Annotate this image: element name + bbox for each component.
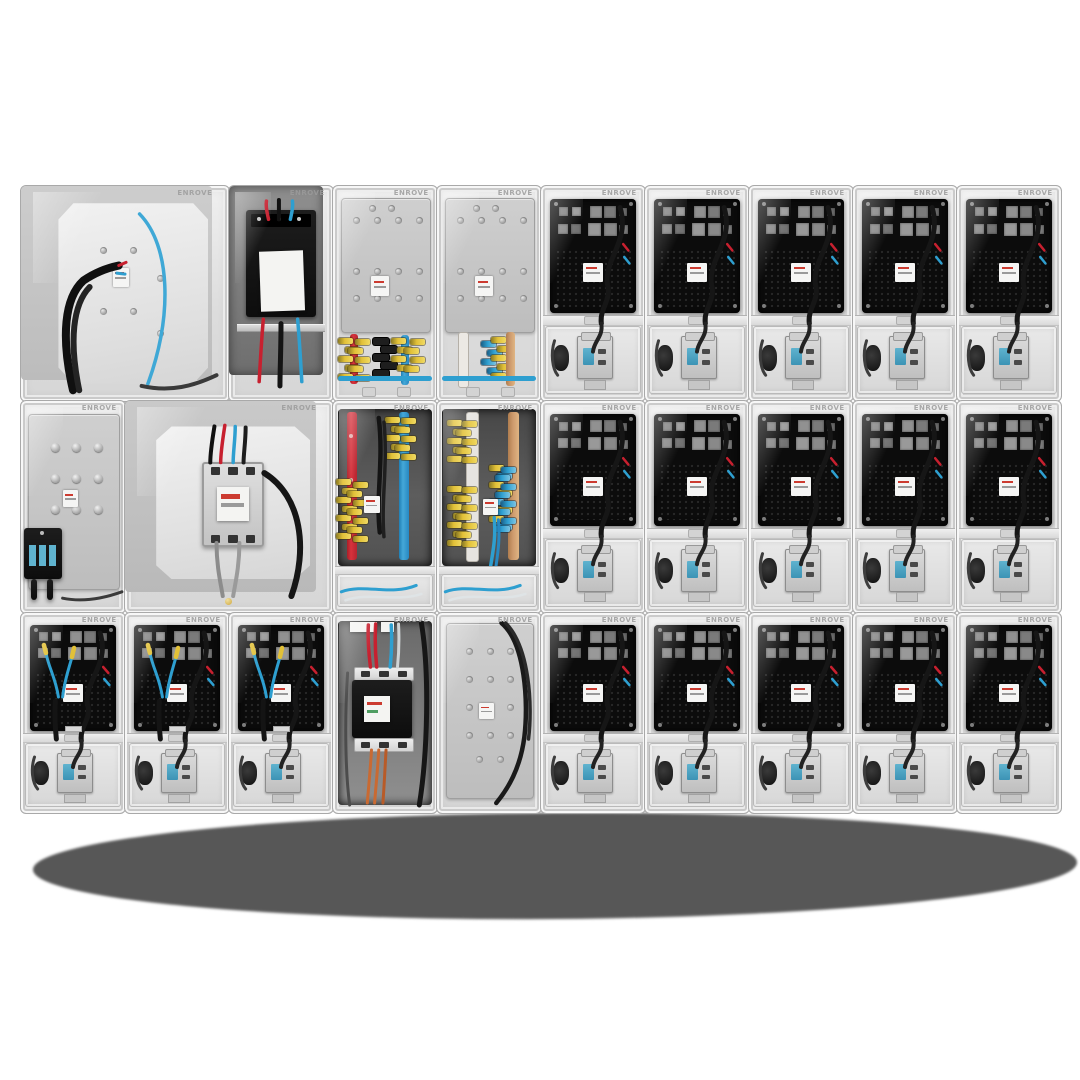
meter-window-cutout — [142, 648, 152, 658]
meter-window-cutout — [260, 632, 269, 641]
meter-window-cutout — [871, 207, 880, 216]
enclosure-blank-plate-C5: ENROVE — [436, 612, 542, 814]
meter-window-cutout — [1035, 225, 1044, 234]
meter-window-cutout — [590, 206, 602, 218]
busbar-lug — [385, 435, 400, 441]
block-foot — [272, 794, 295, 803]
label-mark-red — [586, 267, 597, 269]
strip-slot — [379, 742, 388, 749]
terminal-slot — [910, 562, 919, 567]
terminal-chip-blue — [63, 764, 73, 780]
meter-window-cutout — [766, 224, 776, 234]
meter-window-cutout — [604, 206, 616, 218]
meter-window-cutout — [987, 224, 997, 234]
terminal-block-top — [997, 545, 1027, 554]
terminal-slot — [910, 572, 919, 577]
spec-label — [791, 477, 811, 496]
meter-window-cutout — [604, 631, 616, 643]
breaker-terminal — [211, 535, 220, 543]
meter-window-cutout — [883, 224, 893, 234]
terminal-chip-blue — [583, 764, 593, 780]
bolt-hole — [395, 268, 402, 275]
meter-window-cutout — [931, 225, 940, 234]
meter-id-tag — [65, 726, 83, 732]
terminal-block — [161, 753, 197, 793]
busbar-lug — [401, 418, 416, 424]
meter-window-cutout — [974, 438, 984, 448]
meter-window-cutout — [780, 207, 789, 216]
bolt-hole — [466, 648, 473, 655]
terminal-block-top — [685, 749, 715, 757]
meter-window-cutout — [796, 437, 809, 450]
label-mark-gray — [690, 486, 704, 488]
busbar-lug — [462, 457, 477, 463]
plate-screw — [138, 723, 142, 727]
enclosure-busbar-riser-b-B4: ENROVE — [436, 400, 542, 614]
terminal-block — [265, 753, 301, 793]
terminal-block-top — [685, 332, 715, 341]
terminal-block-top — [165, 749, 195, 757]
enclosure-meter-wired-C2: ENROVE — [124, 612, 230, 814]
meter-window-cutout — [99, 649, 108, 658]
meter-mounting-plate — [654, 625, 739, 731]
meter-mounting-plate — [966, 199, 1051, 313]
busbar-lug — [495, 475, 510, 481]
latch-tab — [688, 529, 709, 537]
bolt-hole — [466, 732, 473, 739]
enclosure-meter-B7: ENROVE — [748, 400, 854, 614]
meter-mounting-plate — [654, 414, 739, 526]
meter-window-cutout — [708, 647, 721, 660]
meter-window-cutout — [588, 437, 601, 450]
plate-screw — [941, 202, 945, 206]
meter-mounting-plate — [654, 199, 739, 313]
terminal-compartment — [129, 743, 225, 807]
terminal-chip-blue — [999, 348, 1009, 365]
meter-mounting-plate — [550, 414, 635, 526]
terminal-block — [889, 549, 925, 592]
label-mark-gray — [374, 286, 386, 288]
meter-window-cutout — [292, 647, 305, 660]
busbar-lug — [353, 536, 368, 542]
cable-lug-black — [381, 346, 397, 353]
bolt-hole — [130, 247, 137, 254]
latch-tab — [688, 734, 709, 742]
plate-screw — [970, 628, 974, 632]
plate-screw — [554, 304, 558, 308]
bolt-head — [94, 474, 103, 483]
plate-screw — [733, 517, 737, 521]
meter-window-cutout — [1020, 223, 1033, 236]
busbar-lug — [336, 497, 351, 503]
mounting-rail — [237, 324, 324, 332]
terminal-slot — [806, 765, 815, 770]
meter-window-cutout — [1035, 208, 1043, 216]
label-mark-red — [794, 688, 805, 690]
meter-mounting-plate — [966, 625, 1051, 731]
latch-tab — [1000, 316, 1021, 324]
spec-label — [999, 263, 1019, 282]
meter-window-cutout — [675, 438, 685, 448]
enclosure-meter-A9: ENROVE — [956, 185, 1062, 402]
bolt-hole — [374, 268, 381, 275]
meter-window-cutout — [1020, 206, 1032, 218]
meter-window-cutout — [1006, 420, 1018, 432]
terminal-compartment — [857, 539, 953, 607]
plate-screw — [629, 202, 633, 206]
meter-window-cutout — [559, 422, 568, 431]
plate-screw — [242, 723, 246, 727]
plate-screw — [866, 517, 870, 521]
top-label — [381, 622, 395, 632]
gland-bolt — [225, 598, 232, 605]
enclosure-aux-plate-B1: ENROVE — [20, 400, 126, 614]
brand-emboss: ENROVE — [498, 405, 533, 412]
plate-screw — [554, 628, 558, 632]
brand-emboss: ENROVE — [706, 190, 741, 197]
enclosure-meter-B5: ENROVE — [540, 400, 646, 614]
enclosure-meter-C7: ENROVE — [644, 612, 750, 814]
terminal-block — [785, 753, 821, 793]
terminal-block — [993, 549, 1029, 592]
meter-window-cutout — [246, 648, 256, 658]
brand-emboss: ENROVE — [1018, 190, 1053, 197]
label-mark-gray — [1002, 693, 1016, 695]
meter-window-cutout — [51, 648, 61, 658]
busbar-lug — [462, 505, 477, 511]
meter-window-cutout — [619, 423, 627, 431]
terminal-compartment — [545, 743, 641, 807]
neutral-rail-blue — [338, 376, 432, 381]
busbar-lug — [338, 338, 353, 344]
bolt-hole — [466, 676, 473, 683]
latch-tab — [896, 529, 917, 537]
enclosure-meter-C6: ENROVE — [540, 612, 646, 814]
bolt-hole — [520, 295, 527, 302]
meter-window-cutout — [662, 648, 672, 658]
busbar-lug — [447, 540, 462, 546]
meter-window-cutout — [780, 422, 789, 431]
busbar-lug — [395, 427, 410, 433]
label-mark-gray — [478, 286, 490, 288]
bolt-head — [94, 505, 103, 514]
cable-gland — [761, 558, 777, 583]
breaker-terminal — [211, 467, 220, 475]
meter-window-cutout — [604, 437, 617, 450]
terminal-slot — [598, 360, 607, 365]
meter-window-cutout — [68, 647, 81, 660]
plate-screw — [762, 517, 766, 521]
meter-window-cutout — [708, 206, 720, 218]
block-foot — [792, 380, 815, 390]
spec-label — [687, 684, 707, 702]
meter-window-cutout — [723, 423, 731, 431]
meter-window-cutout — [884, 632, 893, 641]
busbar-lug — [447, 522, 462, 528]
plate-screw — [629, 723, 633, 727]
label-mark-gray — [66, 693, 80, 695]
plate-screw — [317, 628, 321, 632]
bolt-hole — [100, 308, 107, 315]
brand-emboss: ENROVE — [810, 405, 845, 412]
plate-screw — [1045, 517, 1049, 521]
bolt-hole — [520, 268, 527, 275]
spec-label — [63, 684, 83, 702]
terminal-slot — [598, 572, 607, 577]
meter-window-cutout — [590, 631, 602, 643]
meter-window-cutout — [1004, 437, 1017, 450]
busbar-lug — [447, 504, 462, 510]
breaker-terminal — [228, 535, 237, 543]
label-mark-gray — [1002, 272, 1016, 274]
busbar-lug — [348, 348, 363, 354]
meter-window-cutout — [604, 647, 617, 660]
meter-window-cutout — [70, 631, 82, 643]
terminal-compartment — [649, 326, 745, 395]
busbar-lug — [410, 357, 425, 363]
terminal-slot — [806, 775, 815, 780]
brand-emboss: ENROVE — [394, 617, 429, 624]
busbar-lug — [462, 541, 477, 547]
latch-tab — [168, 734, 189, 742]
meter-window-cutout — [84, 631, 96, 643]
busbar-lug — [404, 366, 419, 372]
bolt-head — [51, 474, 60, 483]
terminal-block — [57, 753, 93, 793]
terminal-block-top — [581, 332, 611, 341]
busbar-lug — [462, 487, 477, 493]
mounting-plate — [58, 203, 208, 384]
plate-screw — [138, 628, 142, 632]
block-foot — [168, 794, 191, 803]
label-mark-gray — [481, 711, 492, 713]
meter-window-cutout — [52, 632, 61, 641]
spec-label — [583, 477, 603, 496]
label-mark-gray — [485, 507, 496, 509]
meter-window-cutout — [292, 631, 304, 643]
busbar-bolt — [349, 434, 353, 438]
meter-window-cutout — [827, 440, 836, 449]
plate-screw — [658, 517, 662, 521]
meter-window-cutout — [975, 422, 984, 431]
terminal-slot — [182, 775, 191, 780]
spec-label — [583, 684, 603, 702]
meter-mounting-plate — [966, 414, 1051, 526]
meter-window-cutout — [676, 632, 685, 641]
plate-screw — [629, 304, 633, 308]
bolt-hole — [157, 275, 164, 282]
terminal-slot — [806, 562, 815, 567]
bolt-hole — [487, 732, 494, 739]
meter-window-cutout — [931, 649, 940, 658]
meter-window-cutout — [676, 422, 685, 431]
block-foot — [688, 380, 711, 390]
brand-emboss: ENROVE — [914, 405, 949, 412]
device-knob — [40, 531, 44, 535]
cable-gland — [761, 345, 777, 370]
meter-window-cutout — [779, 648, 789, 658]
brand-emboss: ENROVE — [1018, 617, 1053, 624]
meter-mounting-plate — [30, 625, 115, 731]
meter-window-cutout — [900, 647, 913, 660]
spec-label — [479, 703, 495, 719]
label-mark-red — [690, 481, 701, 483]
busbar-lug — [391, 356, 406, 362]
meter-window-cutout — [916, 631, 928, 643]
meter-window-cutout — [812, 647, 825, 660]
meter-window-cutout — [1004, 223, 1017, 236]
meter-window-cutout — [278, 631, 290, 643]
terminal-block — [993, 753, 1029, 793]
plate-screw — [866, 723, 870, 727]
meter-window-cutout — [916, 647, 929, 660]
main-breaker-device — [202, 462, 264, 547]
cable-gland — [969, 345, 985, 370]
meter-window-cutout — [619, 649, 628, 658]
terminal-block-top — [789, 749, 819, 757]
terminal-block-top — [581, 749, 611, 757]
mounting-plate — [341, 198, 430, 333]
plate-screw — [34, 628, 38, 632]
strip-slot — [398, 671, 407, 678]
meter-window-cutout — [619, 440, 628, 449]
bolt-head — [51, 443, 60, 452]
terminal-block — [785, 549, 821, 592]
terminal-compartment — [857, 743, 953, 807]
meter-window-cutout — [203, 633, 211, 641]
terminal-slot — [910, 349, 919, 354]
meter-window-cutout — [870, 648, 880, 658]
label-mark-red — [1002, 688, 1013, 690]
cable-gland — [553, 761, 569, 785]
block-foot — [1000, 592, 1023, 602]
plate-screw — [762, 304, 766, 308]
plate-screw — [658, 202, 662, 206]
label-mark-red — [274, 688, 285, 690]
bolt-hole — [395, 295, 402, 302]
bolt-hole — [395, 217, 402, 224]
meter-window-cutout — [812, 223, 825, 236]
meter-window-cutout — [902, 420, 914, 432]
plate-screw — [629, 417, 633, 421]
rail-tab — [501, 387, 515, 397]
meter-id-tag — [169, 726, 187, 732]
bolt-hole — [100, 247, 107, 254]
busbar-lug — [456, 448, 471, 454]
device-leg — [47, 579, 53, 600]
meter-window-cutout — [767, 207, 776, 216]
label-mark-red — [1002, 267, 1013, 269]
spec-label — [371, 276, 389, 295]
meter-mounting-plate — [134, 625, 219, 731]
bolt-hole — [457, 295, 464, 302]
meter-mounting-plate — [862, 199, 947, 313]
product-photo-canvas: ENROVEENROVEENROVEENROVEENROVEENROVEENRO… — [0, 0, 1080, 1080]
enclosure-meter-C8: ENROVE — [748, 612, 854, 814]
meter-window-cutout — [780, 632, 789, 641]
spec-label — [895, 477, 915, 496]
meter-window-cutout — [571, 648, 581, 658]
terminal-slot — [702, 562, 711, 567]
cable-gland — [865, 345, 881, 370]
floor-shadow — [33, 809, 1078, 922]
busbar-lug — [501, 484, 516, 490]
breaker-terminal — [246, 467, 255, 475]
meter-window-cutout — [1020, 437, 1033, 450]
pole-breaker-device — [352, 680, 412, 738]
meter-window-cutout — [662, 224, 672, 234]
spec-label — [999, 477, 1019, 496]
bolt-hole — [507, 648, 514, 655]
meter-window-cutout — [827, 225, 836, 234]
meter-window-cutout — [663, 632, 672, 641]
cable-gland — [33, 761, 49, 785]
label-mark-red — [115, 272, 124, 274]
spec-label — [583, 263, 603, 282]
busbar-lug — [347, 509, 362, 515]
meter-window-cutout — [798, 420, 810, 432]
meter-window-cutout — [974, 648, 984, 658]
terminal-block-top — [789, 332, 819, 341]
enclosure-meter-B6: ENROVE — [644, 400, 750, 614]
cable-lug-black — [373, 354, 389, 361]
meter-mounting-plate — [758, 625, 843, 731]
enclosure-meter-A5: ENROVE — [540, 185, 646, 402]
terminal-slot — [702, 765, 711, 770]
terminal-slot — [1014, 562, 1023, 567]
busbar-lug — [336, 515, 351, 521]
terminal-compartment — [961, 326, 1057, 395]
terminal-slot — [1014, 775, 1023, 780]
meter-window-cutout — [1020, 631, 1032, 643]
terminal-slot — [1014, 765, 1023, 770]
block-foot — [584, 380, 607, 390]
label-mark-red — [481, 707, 490, 709]
meter-window-cutout — [676, 207, 685, 216]
busbar-lug — [353, 518, 368, 524]
bolt-hole — [353, 295, 360, 302]
meter-window-cutout — [1006, 631, 1018, 643]
spec-label — [791, 263, 811, 282]
bolt-hole — [492, 205, 499, 212]
bolt-hole — [507, 704, 514, 711]
bolt-hole — [520, 217, 527, 224]
plate-screw — [1045, 202, 1049, 206]
terminal-slot — [78, 775, 87, 780]
busbar-lug — [501, 518, 516, 524]
meter-window-cutout — [812, 420, 824, 432]
brand-emboss: ENROVE — [290, 190, 325, 197]
plate-screw — [242, 628, 246, 632]
plate-screw — [866, 304, 870, 308]
terminal-block-top — [997, 332, 1027, 341]
bolt-hole — [499, 268, 506, 275]
busbar-lug — [447, 456, 462, 462]
terminal-block — [785, 336, 821, 379]
meter-window-cutout — [723, 208, 731, 216]
plate-screw — [1045, 723, 1049, 727]
meter-window-cutout — [572, 207, 581, 216]
brand-emboss: ENROVE — [1018, 405, 1053, 412]
blue-terminal — [39, 545, 46, 565]
busbar-lug — [491, 337, 506, 343]
busbar-lug — [447, 420, 462, 426]
enclosure-breaker-column-C4: ENROVE — [332, 612, 438, 814]
meter-window-cutout — [663, 207, 672, 216]
meter-window-cutout — [975, 207, 984, 216]
brand-emboss: ENROVE — [394, 190, 429, 197]
busbar-lug — [336, 479, 351, 485]
